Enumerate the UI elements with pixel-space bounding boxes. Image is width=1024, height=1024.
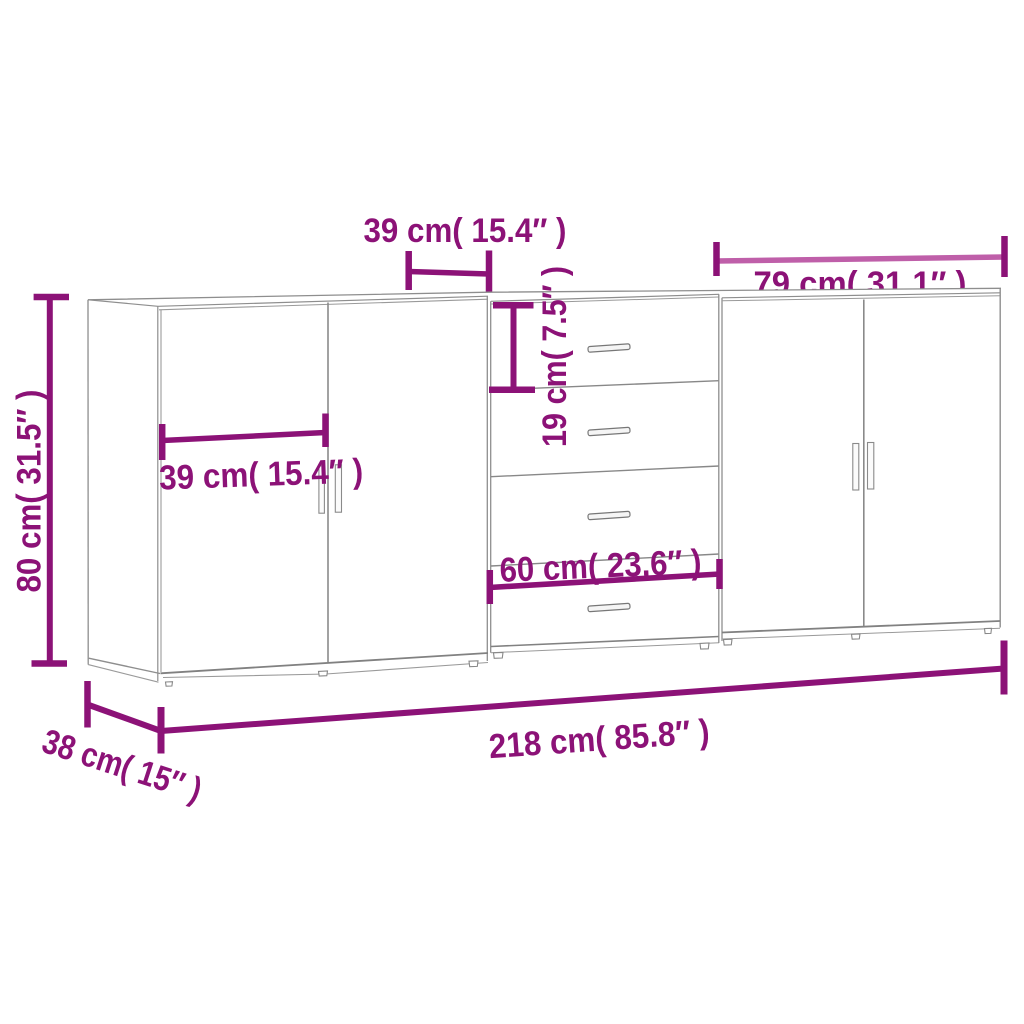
svg-text:39 cm( 15.4″ ): 39 cm( 15.4″ ) xyxy=(364,212,567,250)
svg-text:80 cm( 31.5″ ): 80 cm( 31.5″ ) xyxy=(11,390,49,593)
svg-text:19 cm( 7.5″ ): 19 cm( 7.5″ ) xyxy=(536,266,574,447)
svg-text:39 cm( 15.4″ ): 39 cm( 15.4″ ) xyxy=(159,452,364,497)
